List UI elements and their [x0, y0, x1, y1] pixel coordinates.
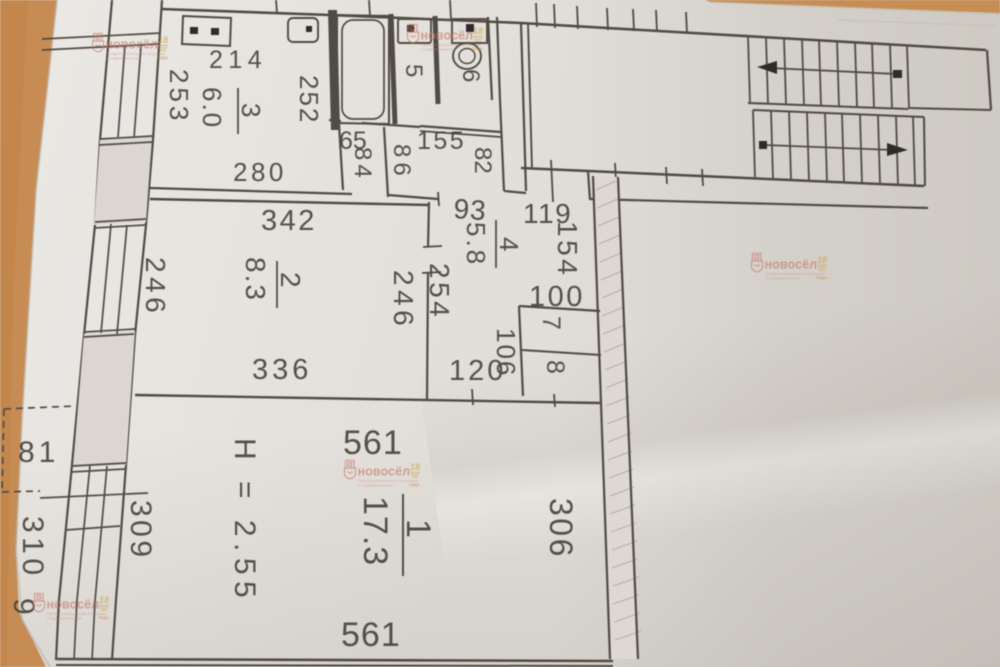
svg-text:2: 2 [275, 272, 306, 288]
svg-text:84: 84 [349, 147, 376, 182]
svg-text:8: 8 [541, 360, 569, 374]
svg-text:561: 561 [341, 616, 401, 654]
svg-text:100: 100 [529, 281, 585, 313]
svg-text:253: 253 [164, 69, 194, 124]
svg-text:254: 254 [424, 263, 455, 320]
svg-text:86: 86 [388, 144, 415, 181]
svg-text:309: 309 [124, 500, 157, 561]
svg-text:154: 154 [552, 221, 583, 278]
svg-text:246: 246 [388, 270, 419, 330]
svg-text:7: 7 [537, 316, 565, 330]
svg-text:1: 1 [399, 519, 437, 538]
svg-text:280: 280 [233, 157, 287, 187]
svg-text:306: 306 [543, 498, 579, 559]
svg-text:336: 336 [252, 354, 312, 386]
svg-text:3: 3 [236, 103, 266, 117]
svg-text:6: 6 [457, 69, 484, 82]
svg-text:17.3: 17.3 [356, 496, 394, 566]
svg-text:81: 81 [18, 436, 59, 469]
svg-text:5: 5 [400, 64, 427, 77]
svg-text:4: 4 [494, 237, 524, 251]
svg-text:252: 252 [294, 75, 324, 124]
svg-text:82: 82 [469, 147, 496, 174]
svg-text:5.8: 5.8 [461, 222, 491, 267]
svg-text:H = 2.55: H = 2.55 [228, 438, 261, 604]
svg-text:561: 561 [343, 424, 403, 462]
svg-text:6.0: 6.0 [197, 87, 227, 129]
svg-text:246: 246 [140, 257, 171, 317]
svg-text:342: 342 [261, 205, 317, 237]
svg-text:120: 120 [449, 355, 506, 387]
svg-text:310: 310 [16, 516, 49, 580]
svg-text:155: 155 [417, 127, 466, 155]
svg-text:214: 214 [209, 46, 267, 74]
svg-text:8.3: 8.3 [240, 257, 271, 302]
